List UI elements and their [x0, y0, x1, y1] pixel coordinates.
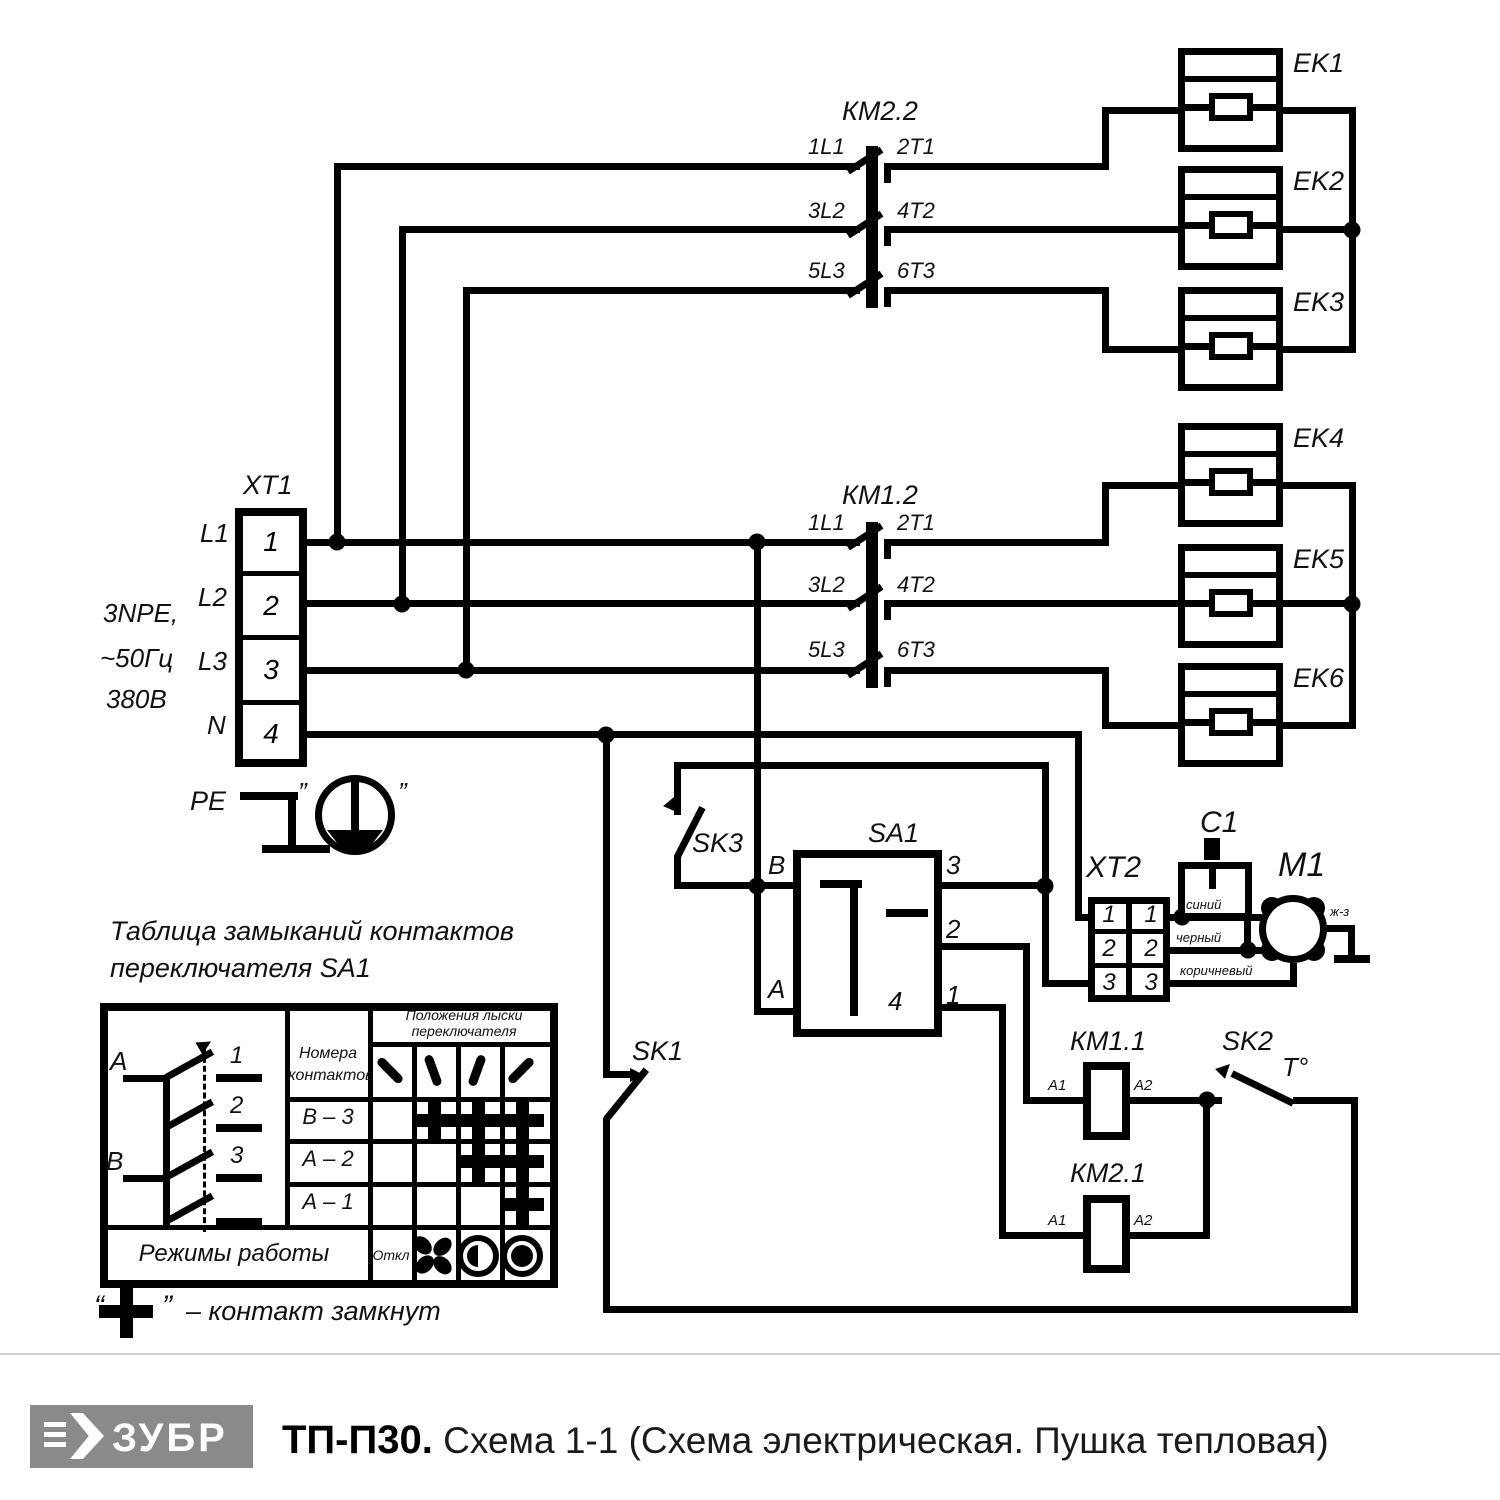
km21-a1: А1 [1048, 1213, 1066, 1228]
xt1-cell-2: 2 [241, 590, 301, 622]
wire [999, 1004, 1006, 1239]
km22-in-label: 3L2 [808, 200, 845, 222]
closed-contact-mark [500, 1182, 544, 1226]
xt2-cell: 1 [1092, 903, 1126, 927]
wire [307, 600, 860, 607]
junction-dot [1199, 1092, 1216, 1109]
heater-ek2 [1178, 166, 1283, 270]
km22-contact-tick [884, 294, 891, 307]
diagram-bar [216, 1174, 262, 1182]
wire [603, 1118, 610, 1313]
phase-l3-label: L3 [198, 648, 227, 674]
wire [1283, 346, 1355, 353]
sa1-symbol [850, 880, 858, 1016]
capacitor-c1-plate [1209, 869, 1216, 889]
junction-dot [394, 596, 411, 613]
wire [1102, 667, 1109, 729]
pe-label: PE [190, 788, 226, 815]
wire-color-black: черный [1176, 931, 1221, 944]
junction-dot [1037, 878, 1054, 895]
supply-label: ~50Гц [100, 645, 173, 671]
xt2-divider [1126, 901, 1132, 998]
wire [1023, 1097, 1083, 1104]
phase-l1-label: L1 [200, 520, 229, 546]
junction-dot [749, 878, 766, 895]
wire [1023, 943, 1030, 1104]
xt2-divider [1092, 963, 1166, 968]
km21-label: КМ2.1 [1070, 1160, 1146, 1187]
xt2-cell: 2 [1134, 937, 1168, 961]
m1-label: М1 [1278, 848, 1325, 882]
legend-plus [99, 1284, 153, 1338]
pe-quote: ” [298, 779, 307, 805]
diagram-b-label: В [106, 1148, 123, 1174]
xt2-label: XT2 [1086, 853, 1141, 883]
xt1-divider [240, 571, 302, 576]
wire [674, 882, 796, 889]
sk1-label: SK1 [632, 1038, 683, 1065]
brand-logo-arrow-icon [70, 1413, 104, 1459]
wire [307, 731, 1082, 738]
diagram-bar [216, 1124, 262, 1132]
pe-wire [262, 845, 330, 853]
ground-wire-label: ж-з [1330, 905, 1349, 918]
half-heat-mode-fill [467, 1245, 489, 1267]
wire [884, 287, 1105, 294]
diagram-a-label: А [110, 1048, 127, 1074]
junction-dot [598, 727, 615, 744]
table-line [368, 1042, 558, 1047]
model-number: ТП-П30. [282, 1418, 433, 1462]
pe-quote: ” [398, 779, 407, 805]
sa1-terminal-b: B [768, 852, 785, 878]
ek3-label: EK3 [1293, 289, 1344, 316]
xt1-cell-4: 4 [241, 718, 301, 750]
km21-a2: А2 [1134, 1213, 1152, 1228]
wire [1348, 925, 1355, 959]
wire [674, 762, 1049, 769]
brand-name: ЗУБР [112, 1416, 228, 1461]
sa1-terminal-2: 2 [946, 916, 960, 942]
sa1-switch-block [793, 850, 942, 1037]
wire [334, 163, 860, 170]
drawing-description: Схема 1-1 (Схема электрическая. Пушка те… [443, 1420, 1329, 1461]
table-col-positions: Положения лыски [371, 1008, 557, 1022]
supply-label: 380В [106, 686, 167, 712]
table-col-numbers: контактов [288, 1068, 368, 1084]
wire-color-blue: синий [1186, 898, 1221, 911]
junction-dot [1344, 222, 1361, 239]
phase-n-label: N [207, 712, 226, 738]
diagram-3-label: 3 [230, 1144, 243, 1168]
c1-label: C1 [1200, 808, 1238, 838]
km12-label: КМ1.2 [842, 482, 918, 509]
wire [999, 1232, 1083, 1239]
diagram-2-label: 2 [230, 1094, 243, 1118]
diagram-link-line [203, 1048, 206, 1232]
heater-ek4 [1178, 423, 1283, 527]
wire [1102, 722, 1182, 729]
sk3-label: SK3 [692, 830, 743, 857]
wire [884, 539, 1105, 546]
ek2-label: EK2 [1293, 168, 1344, 195]
wire [1290, 963, 1297, 987]
km12-out-label: 2T1 [897, 512, 935, 534]
xt2-cell: 3 [1134, 971, 1168, 995]
wire [603, 1306, 1358, 1313]
wire [399, 226, 860, 233]
wire [884, 667, 1105, 674]
sa1-label: SA1 [868, 820, 919, 847]
wire [1102, 482, 1109, 546]
wire [884, 163, 1105, 170]
km22-in-label: 5L3 [808, 260, 845, 282]
sa1-symbol [886, 909, 928, 917]
sa1-terminal-1: 1 [946, 982, 960, 1008]
wire [1170, 980, 1297, 987]
sa1-terminal-4: 4 [888, 988, 902, 1014]
table-title-line2: переключателя SA1 [110, 955, 371, 982]
wire [1075, 735, 1082, 921]
pe-wire [288, 792, 296, 852]
closed-contact-mark [500, 1098, 544, 1142]
supply-label: 3NPE, [103, 600, 178, 626]
km12-in-label: 3L2 [808, 574, 845, 596]
km12-contact-tick [884, 546, 891, 559]
brand-logo: ЗУБР [30, 1405, 253, 1468]
sk2-temp-label: Т° [1282, 1054, 1308, 1080]
junction-dot [458, 662, 475, 679]
table-row-label: В – 3 [288, 1106, 368, 1128]
km22-in-label: 1L1 [808, 136, 845, 158]
wire [1042, 980, 1092, 987]
brand-logo-icon [44, 1432, 66, 1437]
xt1-divider [240, 700, 302, 705]
full-heat-mode-fill [511, 1245, 533, 1267]
wire [1102, 107, 1109, 170]
km11-a1: А1 [1048, 1078, 1066, 1093]
km12-out-label: 6T3 [897, 639, 935, 661]
xt2-divider [1092, 929, 1166, 934]
drawing-title: ТП-П30. Схема 1-1 (Схема электрическая. … [282, 1418, 1329, 1463]
table-col-numbers: Номера [288, 1046, 368, 1062]
xt1-cell-1: 1 [241, 526, 301, 558]
schematic-page: XT1 1 2 3 4 L1 L2 L3 N 3NPE, ~50Гц 380В … [0, 0, 1500, 1500]
diagram-bar [216, 1218, 262, 1226]
junction-dot [1240, 942, 1257, 959]
km22-out-label: 2T1 [897, 136, 935, 158]
km22-out-label: 6T3 [897, 260, 935, 282]
wire [1042, 765, 1049, 987]
ek1-label: EK1 [1293, 50, 1344, 77]
km11-label: КМ1.1 [1070, 1028, 1146, 1055]
legend-text: – контакт замкнут [186, 1298, 441, 1325]
wire [1283, 722, 1355, 729]
motor-ground-bar [1334, 955, 1370, 963]
wire [334, 163, 341, 546]
closed-contact-mark [500, 1139, 544, 1183]
diagram-wire [123, 1075, 166, 1082]
ek6-label: EK6 [1293, 665, 1344, 692]
heater-ek3 [1178, 287, 1283, 391]
phase-l2-label: L2 [198, 584, 227, 610]
diagram-wire [163, 1075, 170, 1225]
junction-dot [749, 534, 766, 551]
wire [942, 882, 1049, 889]
heater-ek5 [1178, 544, 1283, 648]
km12-out-label: 4T2 [897, 574, 935, 596]
junction-dot [1344, 596, 1361, 613]
junction-dot [329, 534, 346, 551]
km22-contact-tick [884, 233, 891, 246]
table-row-label: А – 1 [288, 1191, 368, 1213]
modes-label: Режимы работы [100, 1242, 368, 1266]
wire [463, 287, 860, 294]
closed-contact-mark [412, 1098, 456, 1142]
motor-m1-circle [1259, 895, 1327, 963]
coil-km21 [1083, 1195, 1130, 1273]
wire [1102, 482, 1182, 489]
wire [1351, 1097, 1358, 1313]
wire [399, 226, 406, 607]
xt2-cell: 1 [1134, 903, 1168, 927]
km11-a2: А2 [1134, 1078, 1152, 1093]
wire [757, 1008, 797, 1015]
wire [1102, 107, 1182, 114]
km22-out-label: 4T2 [897, 200, 935, 222]
brand-logo-icon [44, 1442, 66, 1447]
ek5-label: EK5 [1293, 546, 1344, 573]
sa1-terminal-a: A [768, 976, 785, 1002]
xt1-divider [240, 635, 302, 640]
xt1-cell-3: 3 [241, 654, 301, 686]
heater-ek1 [1178, 48, 1283, 152]
wire [674, 856, 681, 889]
table-col-positions: переключателя [371, 1024, 557, 1038]
wire [1102, 287, 1109, 353]
diagram-1-label: 1 [230, 1044, 243, 1068]
ek4-label: EK4 [1293, 425, 1344, 452]
km12-in-label: 1L1 [808, 512, 845, 534]
wire [754, 539, 761, 1015]
wire [463, 287, 470, 674]
km12-in-label: 5L3 [808, 639, 845, 661]
table-line [100, 1225, 558, 1230]
wire [1130, 1232, 1210, 1239]
footer-separator [0, 1353, 1500, 1355]
km22-contact-tick [884, 170, 891, 183]
earth-symbol-stem [351, 782, 359, 834]
wire [307, 539, 860, 546]
closed-contact-mark [456, 1139, 500, 1183]
wire [884, 226, 1182, 233]
legend-quote: ” [162, 1292, 172, 1322]
wire [942, 943, 1030, 950]
diagram-wire [123, 1175, 166, 1182]
wire [1102, 346, 1182, 353]
xt1-label: XT1 [243, 472, 293, 499]
wire [1283, 482, 1355, 489]
xt2-cell: 3 [1092, 971, 1126, 995]
brand-logo-icon [44, 1422, 66, 1427]
sk2-label: SK2 [1222, 1028, 1273, 1055]
heater-ek6 [1178, 663, 1283, 767]
table-title-line1: Таблица замыканий контактов [110, 918, 514, 945]
km12-contact-tick [884, 674, 891, 687]
wire [884, 600, 1182, 607]
xt2-cell: 2 [1092, 937, 1126, 961]
km22-label: КМ2.2 [842, 98, 918, 125]
coil-km11 [1083, 1062, 1130, 1140]
sa1-terminal-3: 3 [946, 852, 960, 878]
wire-color-brown: коричневый [1180, 964, 1253, 977]
km12-contact-tick [884, 607, 891, 620]
wire [1203, 1097, 1210, 1239]
wire [1293, 1097, 1358, 1104]
wire [307, 667, 860, 674]
closed-contact-mark [456, 1098, 500, 1142]
wire [603, 735, 610, 1078]
capacitor-c1-plate [1204, 838, 1220, 860]
table-row-label: А – 2 [288, 1148, 368, 1170]
wire [1283, 107, 1355, 114]
diagram-bar [216, 1074, 262, 1082]
